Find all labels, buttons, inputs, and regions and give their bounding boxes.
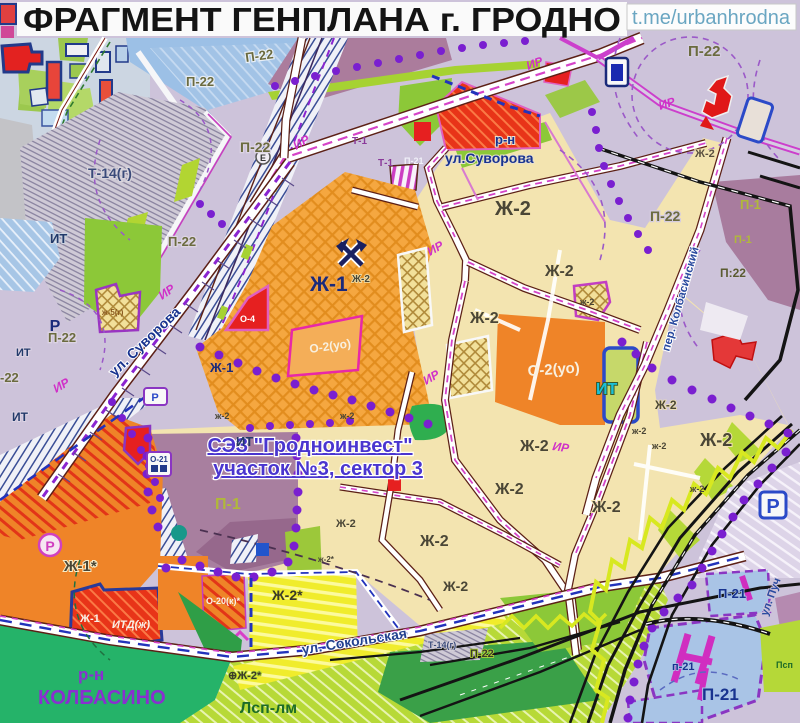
svg-text:П-22: П-22: [48, 330, 76, 345]
svg-text:t.me/urbanhrodna: t.me/urbanhrodna: [632, 7, 791, 29]
svg-text:-22: -22: [0, 370, 19, 385]
svg-text:участок №3, сектор 3: участок №3, сектор 3: [213, 458, 423, 480]
svg-text:Ж-2*: Ж-2*: [271, 587, 303, 603]
svg-text:Ж-2: Ж-2: [442, 578, 468, 594]
svg-text:Т-1: Т-1: [352, 136, 367, 147]
svg-text:р-н: р-н: [78, 665, 104, 684]
svg-text:ИТ: ИТ: [12, 410, 29, 424]
svg-text:ИР: ИР: [552, 439, 571, 455]
svg-text:Ж-1: Ж-1: [209, 360, 233, 375]
svg-text:ж-2*: ж-2*: [317, 555, 335, 564]
svg-text:ж-2: ж-2: [631, 426, 646, 436]
svg-text:КОЛБАСИНО: КОЛБАСИНО: [38, 687, 166, 709]
svg-text:Ж-2: Ж-2: [494, 481, 524, 498]
svg-text:П-22: П-22: [240, 139, 271, 155]
svg-text:ул.Суворова: ул.Суворова: [445, 150, 534, 166]
svg-text:П-22: П-22: [168, 234, 196, 249]
svg-text:О-2(уо): О-2(уо): [527, 359, 580, 380]
svg-text:Т-14(г): Т-14(г): [88, 165, 132, 181]
svg-text:Ж-2: Ж-2: [335, 518, 356, 530]
svg-text:ж-2: ж-2: [579, 297, 594, 307]
svg-text:Лсп-лм: Лсп-лм: [240, 700, 297, 717]
svg-text:ж-2: ж-2: [339, 411, 354, 421]
svg-text:Р: Р: [45, 538, 54, 554]
svg-text:ж-5(г): ж-5(г): [101, 308, 124, 317]
svg-text:Ж-1: Ж-1: [79, 613, 100, 625]
svg-text:П-21: П-21: [404, 156, 423, 166]
svg-text:О-21: О-21: [150, 455, 168, 464]
svg-text:P: P: [151, 392, 158, 404]
svg-text:П-22: П-22: [186, 74, 214, 89]
svg-text:Ж-2: Ж-2: [351, 274, 370, 285]
svg-text:П-1: П-1: [740, 197, 761, 212]
svg-text:П-22: П-22: [688, 43, 720, 60]
svg-text:ж-2: ж-2: [214, 411, 229, 421]
svg-text:Ж-2: Ж-2: [544, 263, 574, 280]
svg-text:р-н: р-н: [495, 132, 515, 147]
svg-text:Ж-1*: Ж-1*: [63, 558, 97, 575]
svg-text:ИТ: ИТ: [16, 347, 31, 359]
svg-text:ИТ: ИТ: [596, 381, 618, 398]
svg-text:П:22: П:22: [720, 266, 746, 280]
svg-text:П-1: П-1: [734, 234, 752, 246]
svg-text:П-1: П-1: [215, 496, 241, 513]
svg-text:П-21: П-21: [718, 586, 746, 601]
svg-text:Ж-2: Ж-2: [694, 148, 715, 160]
svg-text:Ж-2: Ж-2: [699, 430, 732, 450]
svg-text:п-21: п-21: [672, 661, 695, 673]
svg-text:Ж-2: Ж-2: [519, 438, 549, 455]
svg-text:ИТД(ж): ИТД(ж): [112, 619, 150, 631]
svg-text:Т-14(г): Т-14(г): [428, 640, 456, 650]
svg-text:ФРАГМЕНТ ГЕНПЛАНА г. ГРОДНО: ФРАГМЕНТ ГЕНПЛАНА г. ГРОДНО: [23, 1, 621, 38]
svg-text:Ж-2: Ж-2: [654, 398, 677, 412]
svg-text:⊕Ж-2*: ⊕Ж-2*: [228, 670, 262, 682]
svg-text:Ж-1: Ж-1: [309, 273, 348, 296]
svg-text:О-4: О-4: [240, 314, 255, 324]
svg-text:P: P: [766, 496, 779, 518]
svg-text:Ж-2: Ж-2: [494, 198, 531, 220]
svg-text:Ж-2: Ж-2: [419, 533, 449, 550]
svg-text:ж-2: ж-2: [689, 484, 704, 494]
svg-text:Псп: Псп: [776, 660, 793, 670]
svg-text:П-22: П-22: [470, 648, 494, 660]
svg-text:ИТ: ИТ: [236, 434, 253, 449]
svg-text:ж-2: ж-2: [651, 441, 666, 451]
svg-text:Т-1: Т-1: [378, 158, 393, 169]
svg-text:Ж-2: Ж-2: [591, 499, 621, 516]
svg-text:ИТ: ИТ: [50, 231, 67, 246]
svg-text:П-22: П-22: [650, 208, 681, 224]
svg-text:Ж-2: Ж-2: [469, 310, 499, 327]
svg-text:П-21: П-21: [702, 685, 739, 704]
svg-text:О-20(к)*: О-20(к)*: [206, 596, 241, 606]
